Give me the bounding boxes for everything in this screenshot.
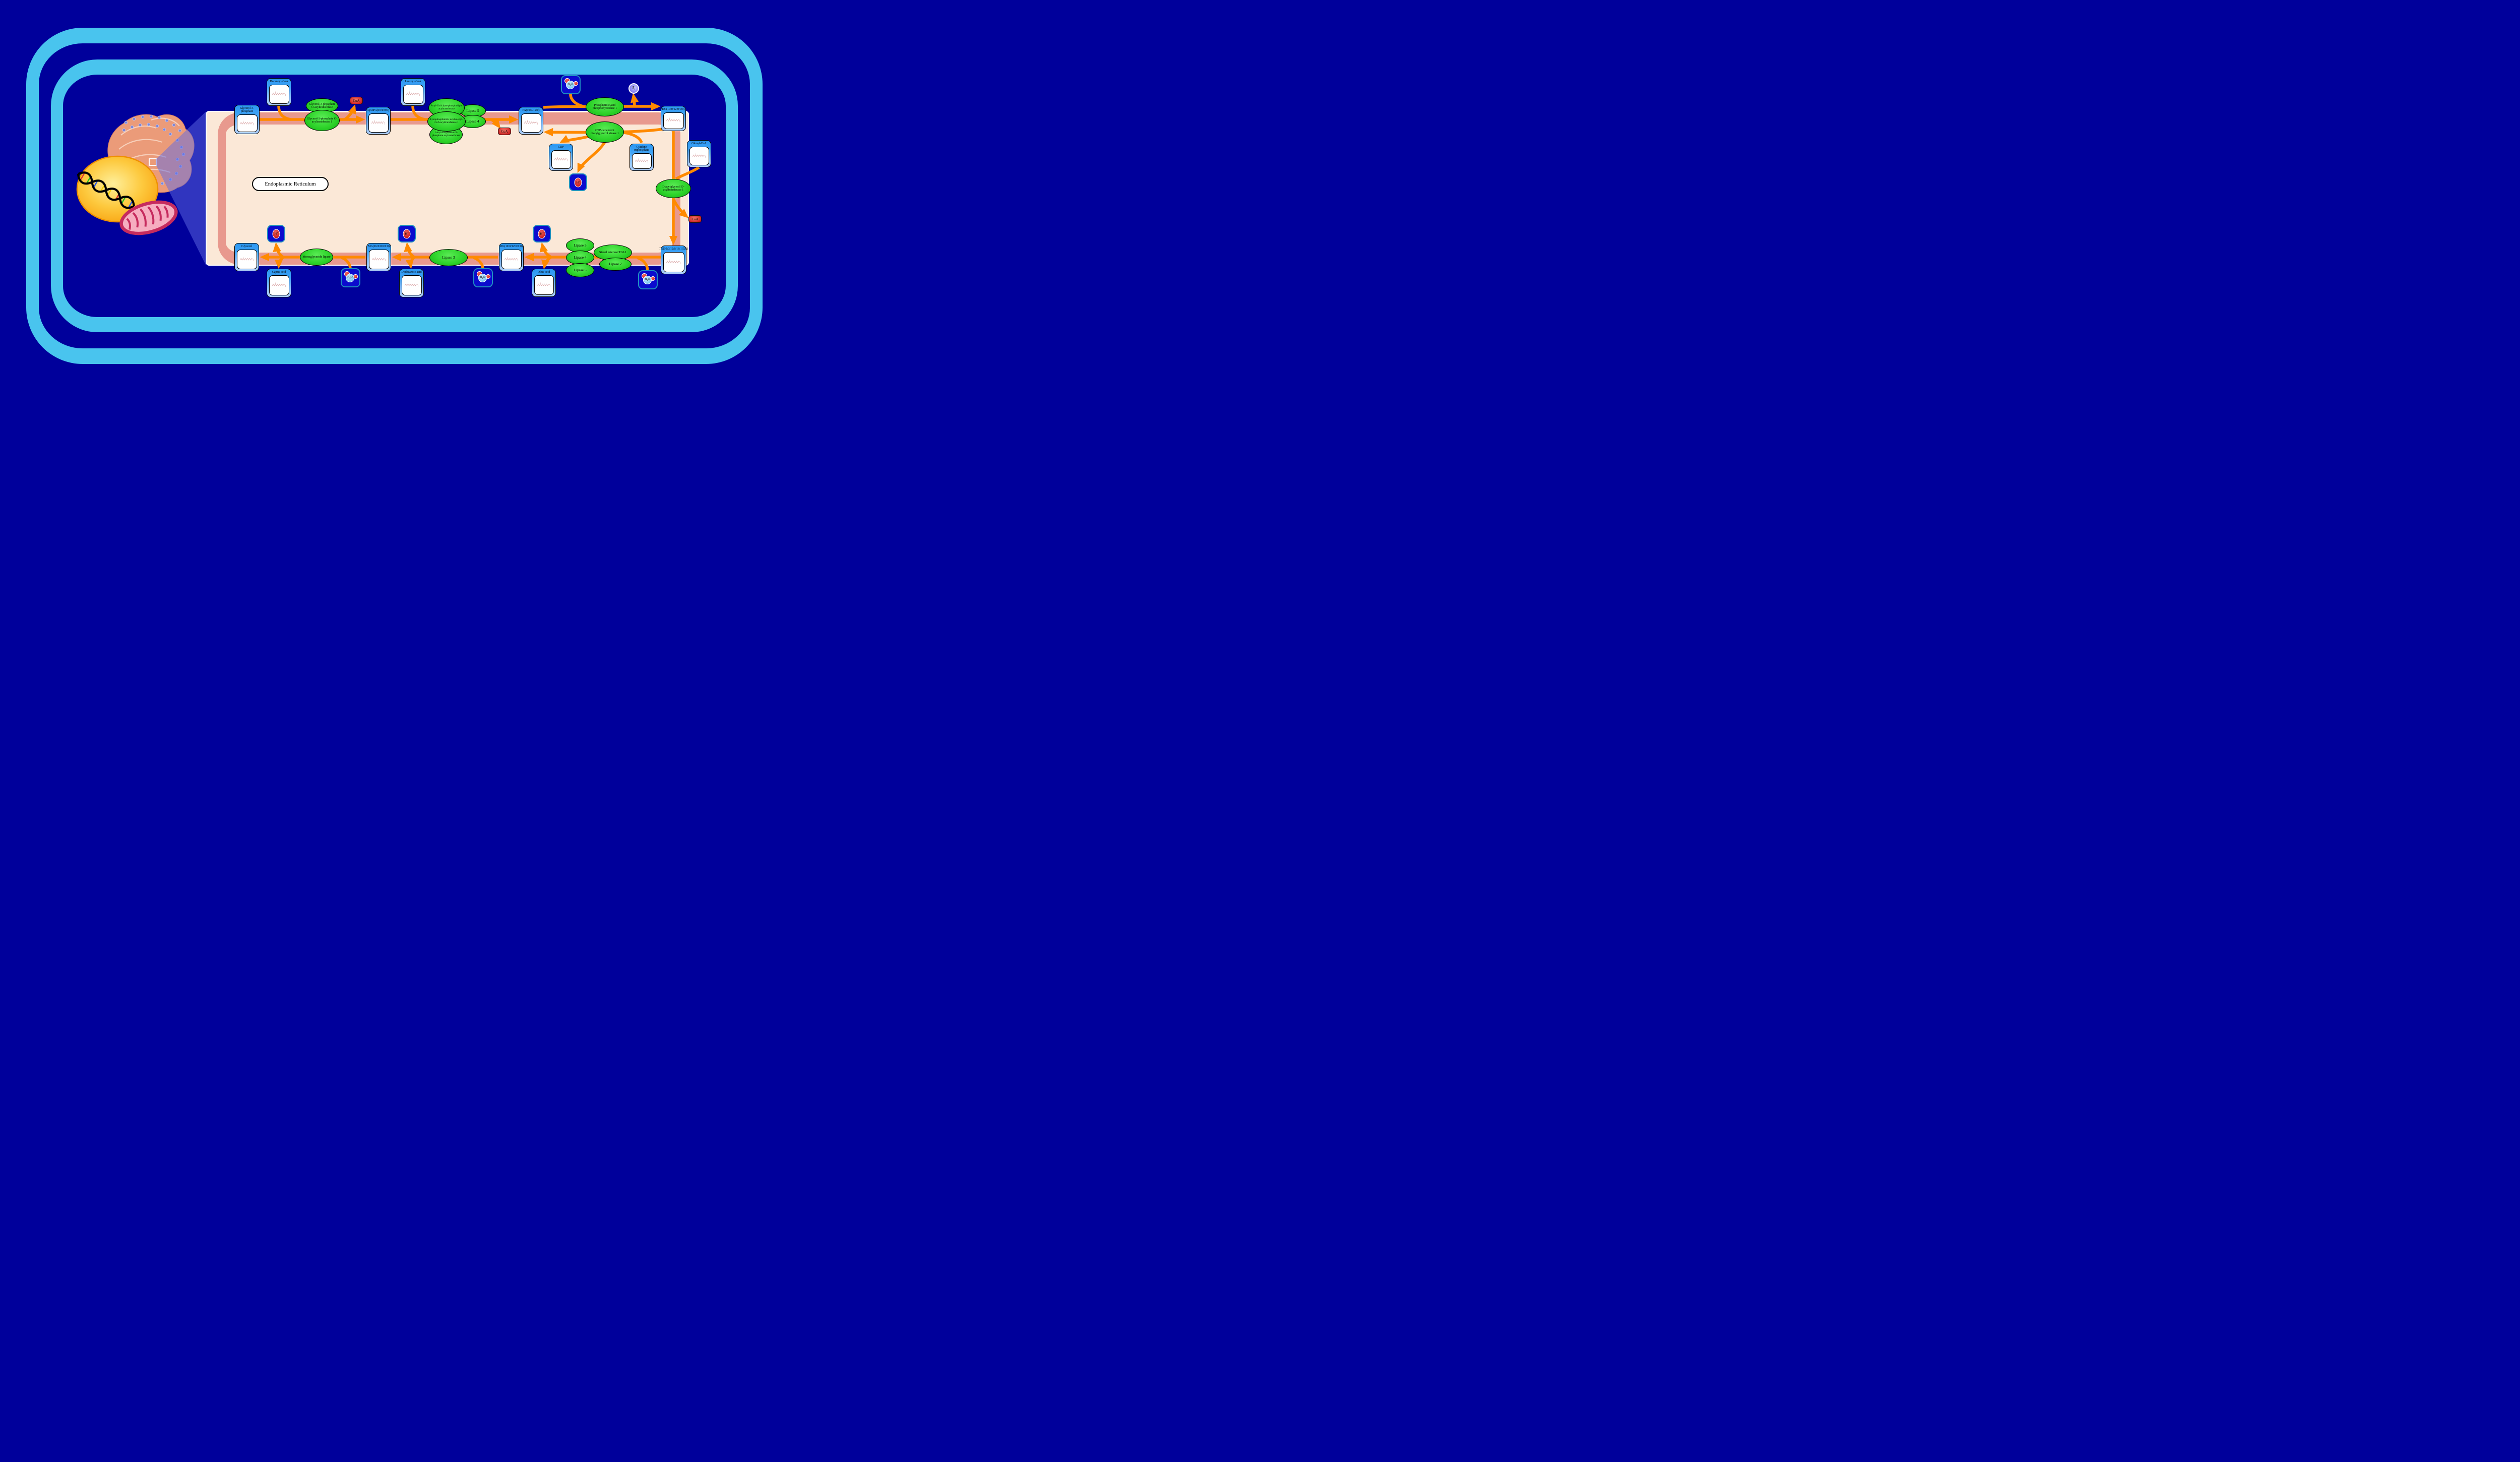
coa-token-coa-1[interactable]: CoA [350,97,363,104]
water-molecule-icon: H2O [643,276,652,284]
pathway-nodes: Glycerol 3-phosphateDecanoyl-CoALysoPA(1… [0,0,789,365]
proton-icon: H+ [575,177,582,187]
metabolite-lysopa[interactable]: LysoPA(10:0/0:0) [366,107,391,135]
metabolite-label: Glycerol 3-phosphate [235,105,259,114]
chemical-structure-icon [632,153,652,168]
chemical-structure-icon [269,275,289,295]
chemical-structure-icon [663,252,684,272]
enzyme-label: Lipase 4 [574,256,586,260]
coa-token-coa-3[interactable]: CoA [688,215,702,223]
enzyme-label: Phosphatidic acid phosphohydrolase 1 [587,104,623,110]
chemical-structure-icon [368,113,389,133]
metabolite-label: Capric acid [267,269,291,274]
chemical-structure-icon [369,250,389,269]
enzyme-lipase3-mid[interactable]: Lipase 3 [429,249,468,266]
metabolite-oleoyl-coa[interactable]: Oleoyl-CoA [687,140,711,167]
proton-icon: H+ [273,229,280,238]
metabolite-capric-acid[interactable]: Capric acid [267,269,291,297]
chemical-structure-icon [551,150,571,169]
h2o-token-h2o-bottom-3[interactable]: H2O [638,270,658,289]
water-molecule-icon: H2O [346,274,354,282]
hplus-token-h-plus-mid[interactable]: H+ [569,173,587,191]
chemical-structure-icon [501,250,522,269]
water-molecule-icon: H2O [478,274,487,282]
hplus-token-h-plus-bottom-1[interactable]: H+ [267,225,285,242]
chemical-structure-icon [521,113,541,133]
proton-icon: H+ [538,229,546,238]
metabolite-dg-top[interactable]: DG(10:0/12:0/0:0) [661,106,686,131]
chemical-structure-icon [534,275,554,295]
enzyme-mgl[interactable]: Monoglyceride lipase [300,249,333,266]
metabolite-cytidine-triphosphate[interactable]: Cytidine triphosphate [629,144,654,171]
metabolite-label: DG(10:0/12:0/0:0) [654,106,692,111]
pi-token-pi[interactable]: Pi [628,83,639,94]
enzyme-lpaat1[interactable]: Lysophosphatidic acid:oleoyl-CoA acyltra… [427,111,466,132]
metabolite-glycerol[interactable]: Glycerol [234,243,259,271]
chemical-structure-icon [402,275,422,295]
enzyme-label: Lipase 2 [609,262,621,266]
lipid-metabolism-pathway-diagram: Glycerol 3-phosphateDecanoyl-CoALysoPA(1… [0,0,789,365]
chemical-structure-icon [237,114,258,132]
enzyme-label: Lipase 5 [574,268,586,272]
metabolite-dg-bottom[interactable]: DG(10:0/12:0/0:0) [499,243,524,271]
metabolite-label: Cytidine triphosphate [630,144,653,153]
enzyme-lipase5-cluster[interactable]: Lipase 5 [566,263,594,277]
hplus-token-h-plus-bottom-2[interactable]: H+ [398,225,416,242]
metabolite-lauroyl-coa[interactable]: Lauroyl-CoA [401,78,425,106]
enzyme-label: Lipase 3 [442,256,455,260]
metabolite-cdp[interactable]: CDP [549,144,573,171]
metabolite-label: Oleoyl-CoA [687,141,711,146]
metabolite-mg[interactable]: MG(16:0/0:0/0:0) [366,243,391,271]
metabolite-label: Glycerol [235,243,259,249]
enzyme-label: Lipase 4 [466,119,479,124]
enzyme-label: Lipase 5 [466,109,479,113]
enzyme-label: 1-acyl-sn-glycerol-3-phosphate acyltrans… [430,132,462,137]
er-region-label-text: Endoplasmic Reticulum [265,181,316,187]
enzyme-lipase4-cluster[interactable]: Lipase 4 [566,251,594,265]
enzyme-dgat1[interactable]: Diacylglycerol O-acyltransferase 1 [656,179,691,198]
enzyme-label: Monoglyceride lipase [302,256,331,259]
metabolite-label: Oleic acid [532,269,555,274]
chemical-structure-icon [403,85,423,104]
metabolite-label: LysoPA(10:0/0:0) [359,107,397,112]
enzyme-label: CTP-dependent diacylglycerol kinase 1 [587,129,623,135]
chemical-structure-icon [269,85,289,104]
h2o-token-h2o-top[interactable]: H2O [561,75,581,94]
metabolite-label: Dodecanoic acid [400,269,423,274]
hplus-token-h-plus-bottom-3[interactable]: H+ [533,225,551,242]
metabolite-label: PA(10:0/12:0) [512,107,550,112]
coa-token-coa-2[interactable]: CoA [498,128,511,135]
enzyme-label: Glycerol-3-phosphate O-acyltransferase [307,103,337,109]
enzyme-lipase2-cluster[interactable]: Lipase 2 [599,258,632,271]
proton-icon: H+ [403,229,411,238]
chemical-structure-icon [663,112,684,129]
er-region-label: Endoplasmic Reticulum [252,177,329,191]
metabolite-pa[interactable]: PA(10:0/12:0) [519,107,543,135]
enzyme-cdgk1[interactable]: CTP-dependent diacylglycerol kinase 1 [586,121,624,143]
enzyme-label: Sterol esterase TGL1 [599,251,626,255]
metabolite-label: DG(10:0/12:0/0:0) [492,243,530,249]
metabolite-label: CDP [549,144,573,149]
enzyme-label: Diacylglycerol O-acyltransferase 1 [657,186,690,192]
chemical-structure-icon [237,250,257,269]
h2o-token-h2o-bottom-2[interactable]: H2O [473,268,493,287]
metabolite-tg[interactable]: TG(10:0/12:0/18:1(9Z)) [661,246,686,274]
water-molecule-icon: H2O [566,81,575,89]
metabolite-dodecanoic-acid[interactable]: Dodecanoic acid [399,269,424,297]
metabolite-label: Decanoyl-CoA [267,79,291,84]
metabolite-label: MG(16:0/0:0/0:0) [360,243,398,249]
enzyme-label: Lysophosphatidic acid:oleoyl-CoA acyltra… [428,118,465,124]
chemical-structure-icon [689,147,709,165]
metabolite-label: Lauroyl-CoA [401,79,425,84]
enzyme-label: Acyl-CoA:lyso-phospholipid acyltransfera… [429,105,464,110]
enzyme-gpat1[interactable]: Glycerol-3-phosphate O-acyltransferase 1 [304,110,340,131]
metabolite-decanoyl-coa[interactable]: Decanoyl-CoA [267,78,291,106]
metabolite-glycerol-3-phosphate[interactable]: Glycerol 3-phosphate [234,105,260,134]
metabolite-oleic-acid[interactable]: Oleic acid [532,269,556,297]
h2o-token-h2o-bottom-1[interactable]: H2O [341,268,360,287]
enzyme-label: Lipase 3 [574,243,586,248]
metabolite-label: TG(10:0/12:0/18:1(9Z)) [654,246,693,251]
enzyme-pap1[interactable]: Phosphatidic acid phosphohydrolase 1 [586,97,624,116]
enzyme-label: Glycerol-3-phosphate O-acyltransferase 1 [305,117,339,124]
